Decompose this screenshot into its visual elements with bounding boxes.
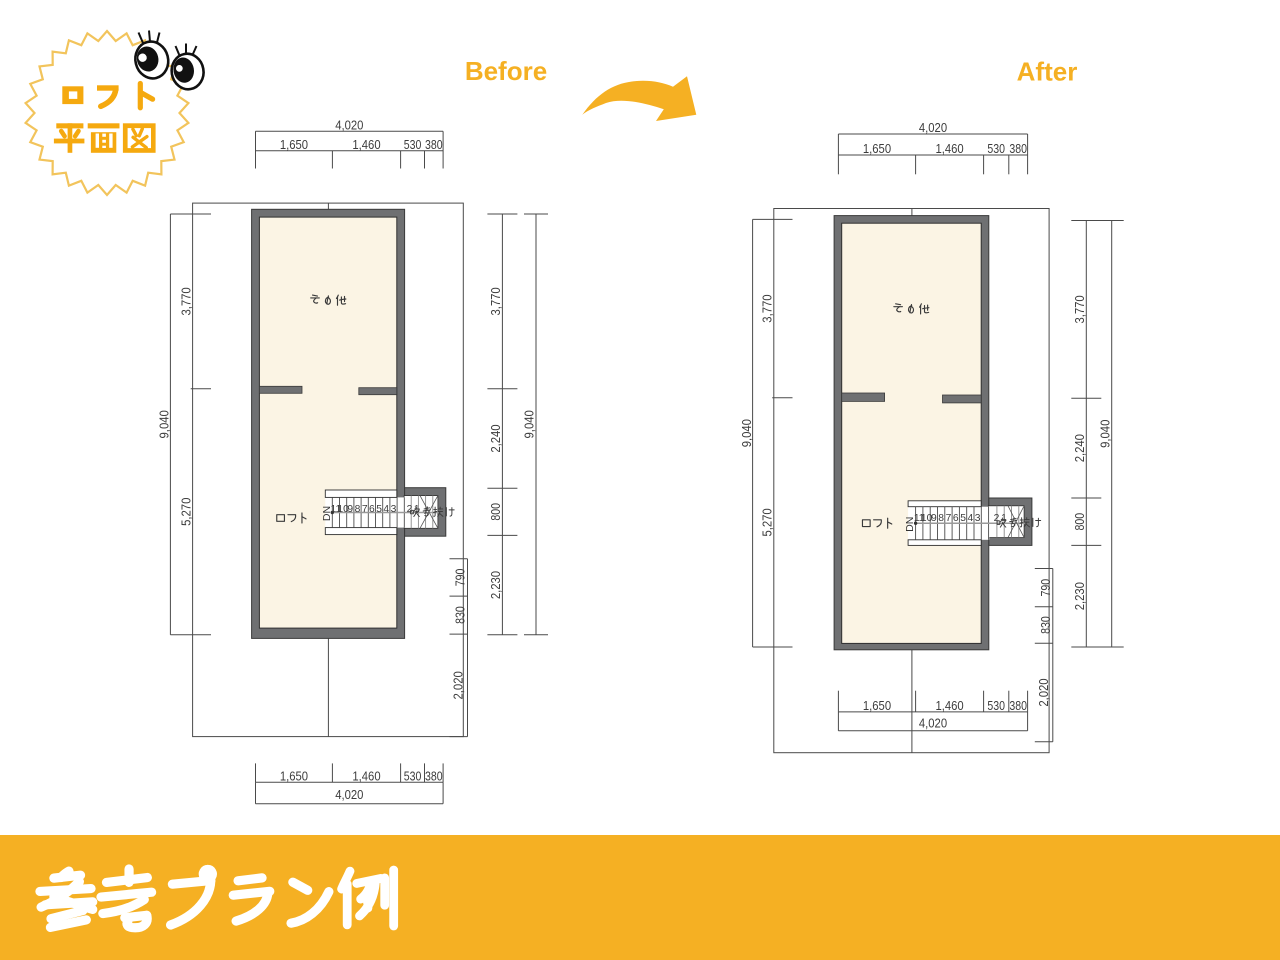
svg-text:5,270: 5,270 [760, 508, 775, 536]
svg-text:9: 9 [931, 513, 937, 524]
svg-text:2,240: 2,240 [488, 424, 503, 452]
svg-text:830: 830 [453, 606, 468, 624]
svg-text:9,040: 9,040 [1097, 420, 1112, 448]
svg-text:1,460: 1,460 [936, 698, 964, 713]
svg-text:4: 4 [383, 504, 389, 515]
svg-text:9,040: 9,040 [522, 410, 537, 438]
svg-text:After: After [1017, 57, 1078, 87]
svg-text:1,460: 1,460 [936, 141, 964, 156]
svg-text:1,650: 1,650 [280, 768, 308, 783]
svg-text:1,650: 1,650 [280, 137, 308, 152]
svg-text:800: 800 [488, 503, 503, 521]
svg-text:2,240: 2,240 [1072, 434, 1087, 462]
svg-text:7: 7 [362, 504, 368, 515]
svg-text:380: 380 [1009, 698, 1027, 713]
svg-text:Before: Before [465, 56, 547, 86]
svg-text:3: 3 [391, 504, 397, 515]
svg-text:6: 6 [369, 504, 375, 515]
svg-text:5,270: 5,270 [178, 498, 193, 526]
svg-text:4: 4 [968, 513, 974, 524]
svg-text:9: 9 [347, 504, 353, 515]
svg-text:2,020: 2,020 [1036, 678, 1051, 706]
svg-text:3,770: 3,770 [488, 287, 503, 315]
svg-text:4,020: 4,020 [335, 118, 363, 133]
svg-text:1,650: 1,650 [863, 141, 891, 156]
svg-text:7: 7 [946, 513, 952, 524]
svg-text:1,460: 1,460 [352, 137, 380, 152]
svg-text:800: 800 [1072, 513, 1087, 531]
svg-text:5: 5 [960, 513, 966, 524]
svg-text:380: 380 [425, 137, 443, 152]
svg-text:530: 530 [404, 137, 422, 152]
svg-text:3,770: 3,770 [178, 287, 193, 315]
svg-text:2,230: 2,230 [1072, 582, 1087, 610]
svg-text:6: 6 [953, 513, 959, 524]
svg-text:4,020: 4,020 [335, 787, 363, 802]
svg-text:9,040: 9,040 [157, 410, 172, 438]
svg-text:830: 830 [1038, 616, 1053, 634]
svg-text:790: 790 [453, 569, 468, 587]
svg-text:8: 8 [355, 504, 361, 515]
svg-text:DN: DN [904, 517, 916, 532]
svg-text:4,020: 4,020 [919, 715, 947, 730]
svg-text:8: 8 [938, 513, 944, 524]
svg-text:1,650: 1,650 [863, 698, 891, 713]
svg-text:3: 3 [975, 513, 981, 524]
svg-text:530: 530 [987, 141, 1005, 156]
svg-text:3,770: 3,770 [1072, 295, 1087, 323]
svg-text:1,460: 1,460 [352, 768, 380, 783]
svg-text:2,230: 2,230 [488, 571, 503, 599]
svg-text:530: 530 [987, 698, 1005, 713]
svg-text:790: 790 [1038, 579, 1053, 597]
svg-text:2,020: 2,020 [451, 671, 466, 699]
svg-text:380: 380 [425, 768, 443, 783]
svg-text:DN: DN [321, 506, 333, 521]
svg-text:380: 380 [1009, 141, 1027, 156]
svg-text:3,770: 3,770 [760, 294, 775, 322]
svg-text:9,040: 9,040 [739, 419, 754, 447]
svg-text:4,020: 4,020 [919, 120, 947, 135]
svg-text:5: 5 [376, 504, 382, 515]
svg-text:530: 530 [404, 768, 422, 783]
